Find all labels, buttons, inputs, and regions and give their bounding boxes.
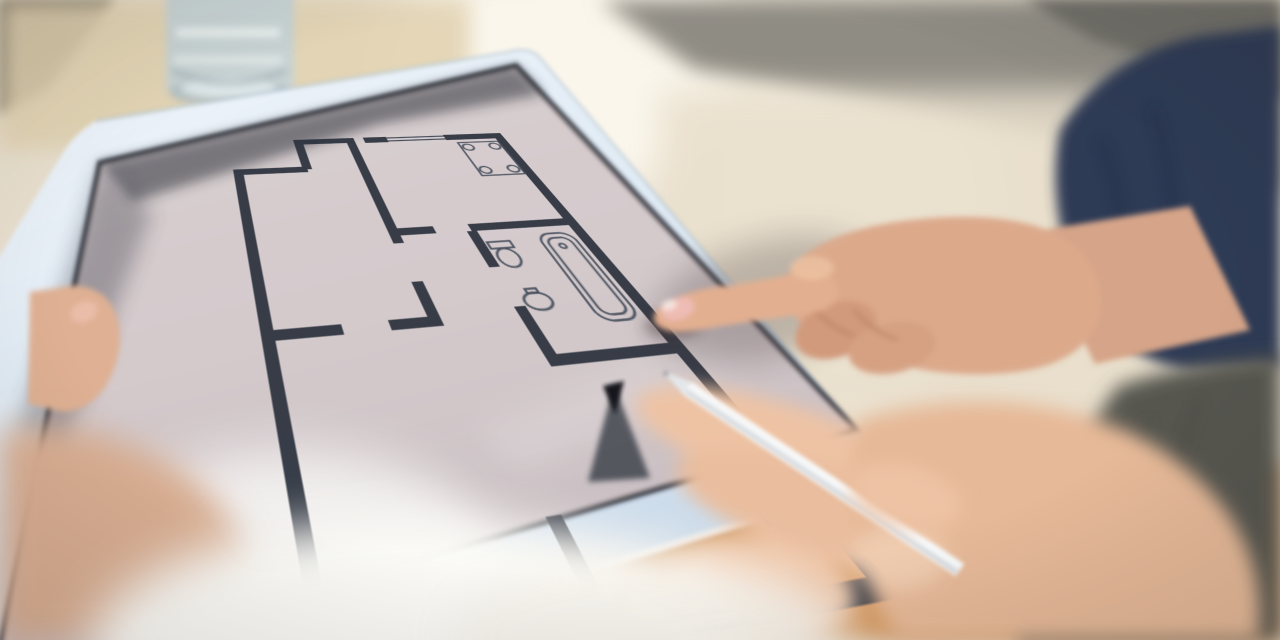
window-light-glow: [700, 20, 1000, 400]
balcony-window-line-inner: [596, 619, 746, 640]
wall-bedroom-top: [233, 167, 308, 176]
thumb-nail: [67, 297, 101, 327]
wall-living-left: [262, 341, 345, 640]
dining-table-icon: [458, 141, 526, 175]
curled-finger-1: [787, 290, 884, 369]
wall-hall-b: [467, 218, 568, 231]
wall-outer-right-lower: [677, 352, 903, 601]
wall-bedroom-bottom-a: [260, 324, 344, 342]
wall-living-bottom-b: [731, 574, 903, 628]
grey-sleeve-folds: [1096, 400, 1200, 610]
wall-kitchen-left-lower: [411, 281, 444, 327]
hand-back: [786, 217, 1101, 374]
floor-plan-fixtures: [422, 141, 814, 538]
floor-plan-layer: [84, 124, 989, 640]
knuckle-highlight: [790, 256, 834, 280]
wall-kitchen-top-a: [363, 137, 389, 143]
wall-bath-bottom: [544, 341, 690, 366]
window-line-inner: [388, 138, 446, 141]
wall-hall-a: [397, 226, 436, 235]
thumb: [28, 286, 120, 412]
warm-background: [660, 90, 1180, 420]
wrist: [1030, 206, 1250, 364]
photo-scene: [0, 0, 1280, 640]
balcony-window-line-outer: [588, 605, 736, 638]
wall-bedroom-bottom-b: [388, 316, 444, 331]
wall-kitchen-top-b: [443, 133, 505, 140]
window-line-outer: [386, 136, 444, 139]
pointing-hand: [654, 206, 1250, 382]
grey-sleeve: [1016, 356, 1280, 640]
wall-bath-left-lower: [514, 306, 564, 367]
wall-alcove-left: [293, 140, 312, 170]
grey-wall-corner: [1025, 0, 1280, 100]
dark-corner-shelf: [0, 0, 115, 115]
glass-of-water: [166, 0, 294, 107]
wall-bath-left-upper: [467, 231, 500, 268]
wall-outer-right: [491, 133, 690, 353]
floor-plan: [84, 124, 989, 640]
wall-kitchen-left-upper: [345, 138, 404, 244]
wall-living-bottom-a: [319, 629, 600, 640]
toilet-icon: [487, 241, 527, 268]
wall-bedroom-left: [233, 169, 275, 342]
paper-sketches: [0, 285, 122, 575]
bathtub-icon: [536, 232, 642, 322]
wall-alcove-top: [293, 138, 355, 145]
floor-plan-walls: [228, 133, 903, 640]
washbasin-icon: [517, 288, 558, 311]
navy-sleeve: [1056, 26, 1280, 370]
curled-finger-2: [844, 314, 940, 381]
grey-wall-band: [600, 0, 1280, 195]
finger-creases: [806, 300, 898, 340]
sink-icon: [731, 470, 811, 524]
wall-stub: [546, 515, 620, 630]
